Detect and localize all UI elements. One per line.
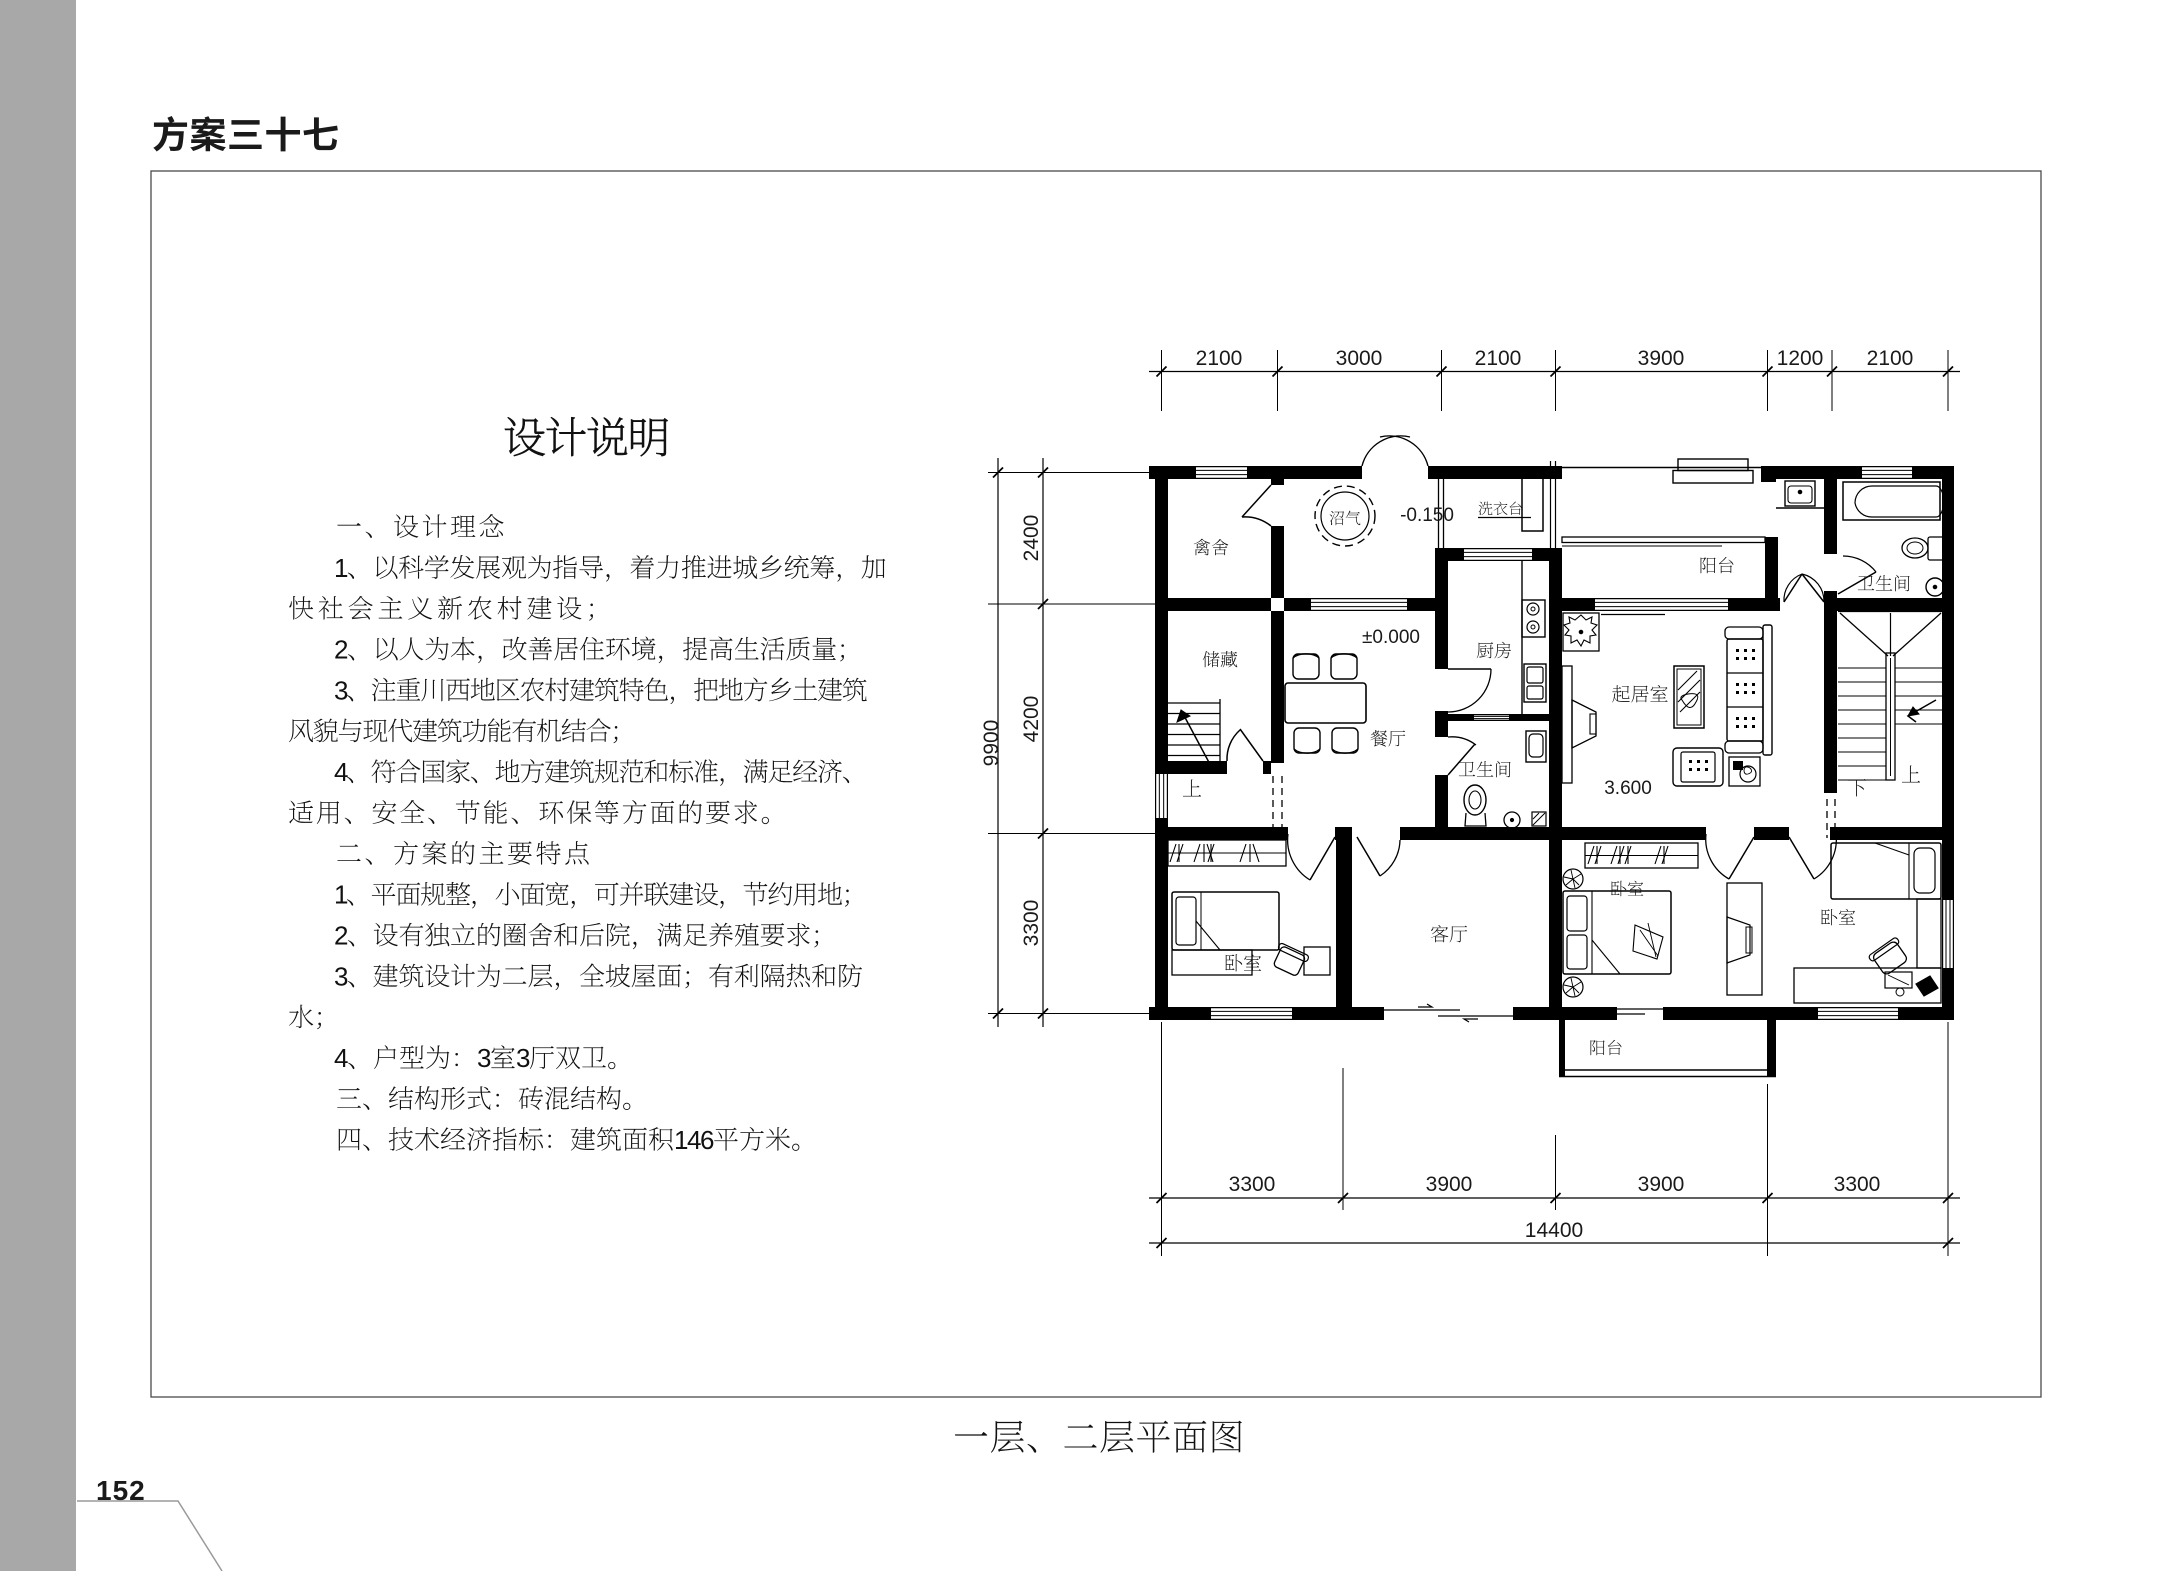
svg-text:2: 2: [334, 635, 348, 665]
svg-text:3900: 3900: [1638, 347, 1685, 370]
svg-text:2400: 2400: [1020, 515, 1043, 562]
svg-text:3: 3: [334, 675, 348, 705]
svg-text:3900: 3900: [1426, 1173, 1473, 1196]
svg-text:3: 3: [516, 1043, 530, 1073]
svg-text:6: 6: [700, 1125, 714, 1155]
svg-text:1: 1: [334, 880, 348, 910]
svg-text:4: 4: [334, 1043, 348, 1073]
svg-text:3300: 3300: [1020, 900, 1043, 947]
svg-text:±0.000: ±0.000: [1362, 627, 1420, 648]
svg-text:4200: 4200: [1020, 696, 1043, 743]
svg-text:4: 4: [334, 757, 348, 787]
svg-text:1200: 1200: [1777, 347, 1824, 370]
svg-text:3300: 3300: [1229, 1173, 1276, 1196]
svg-text:2100: 2100: [1867, 347, 1914, 370]
svg-text:2100: 2100: [1475, 347, 1522, 370]
svg-text:2100: 2100: [1196, 347, 1243, 370]
svg-text:3900: 3900: [1638, 1173, 1685, 1196]
svg-text:3000: 3000: [1336, 347, 1383, 370]
svg-text:3.600: 3.600: [1604, 778, 1652, 799]
svg-text:3300: 3300: [1834, 1173, 1881, 1196]
svg-text:3: 3: [477, 1043, 491, 1073]
svg-text:-0.150: -0.150: [1400, 505, 1454, 526]
svg-text:3: 3: [334, 961, 348, 991]
svg-text:2: 2: [334, 921, 348, 951]
svg-text:9900: 9900: [980, 720, 1003, 767]
svg-text:1: 1: [334, 553, 348, 583]
svg-text:14400: 14400: [1525, 1219, 1583, 1242]
